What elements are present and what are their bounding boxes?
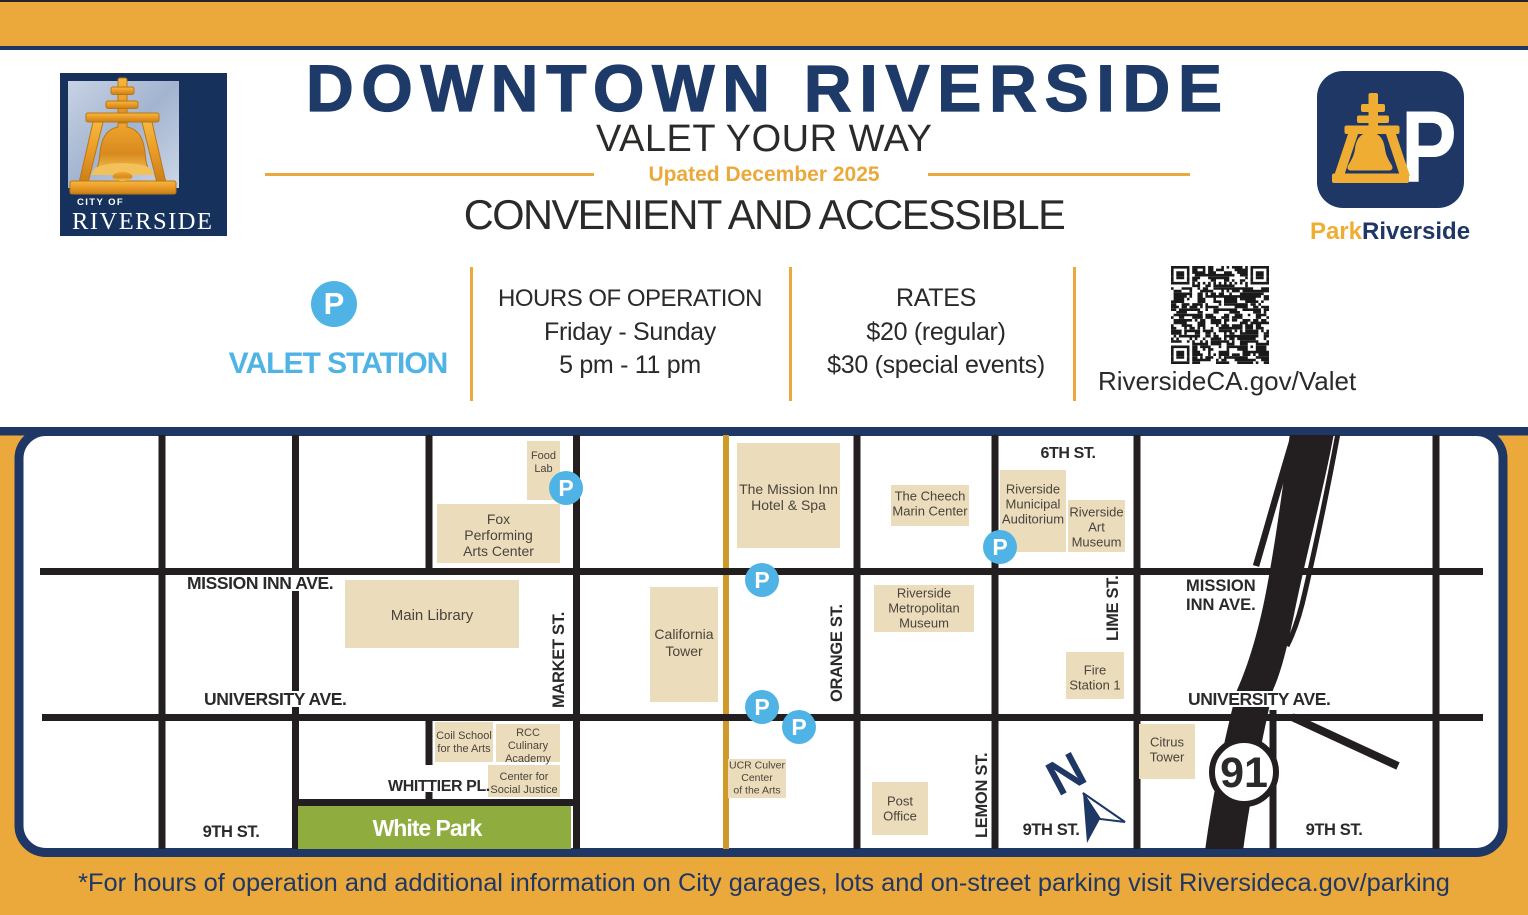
svg-text:White Park: White Park: [373, 815, 483, 841]
svg-text:CitrusTower: CitrusTower: [1150, 734, 1185, 764]
svg-text:6TH ST.: 6TH ST.: [1041, 445, 1096, 462]
svg-text:FoodLab: FoodLab: [531, 450, 556, 475]
svg-text:WHITTIER PL.: WHITTIER PL.: [388, 778, 490, 795]
svg-text:The CheechMarin Center: The CheechMarin Center: [892, 488, 968, 518]
svg-text:RiversideMunicipalAuditorium: RiversideMunicipalAuditorium: [1002, 481, 1064, 526]
svg-text:MISSIONINN AVE.: MISSIONINN AVE.: [1186, 577, 1256, 614]
svg-text:P: P: [754, 567, 769, 593]
svg-text:Center forSocial Justice: Center forSocial Justice: [490, 771, 557, 796]
svg-text:9TH ST.: 9TH ST.: [203, 823, 260, 841]
svg-text:MISSION INN AVE.: MISSION INN AVE.: [187, 573, 333, 593]
svg-text:Main Library: Main Library: [391, 607, 474, 624]
svg-text:The Mission InnHotel & Spa: The Mission InnHotel & Spa: [739, 481, 838, 513]
svg-text:LIME ST.: LIME ST.: [1104, 576, 1122, 641]
svg-text:P: P: [558, 475, 573, 501]
svg-text:9TH ST.: 9TH ST.: [1306, 821, 1363, 839]
svg-text:P: P: [992, 534, 1007, 560]
svg-text:Coil Schoolfor the Arts: Coil Schoolfor the Arts: [436, 730, 492, 755]
svg-text:PostOffice: PostOffice: [883, 793, 917, 823]
svg-text:9TH ST.: 9TH ST.: [1023, 821, 1080, 839]
svg-text:MARKET ST.: MARKET ST.: [550, 612, 568, 708]
svg-text:UNIVERSITY AVE.: UNIVERSITY AVE.: [1188, 689, 1330, 709]
svg-text:ORANGE ST.: ORANGE ST.: [828, 604, 846, 702]
svg-text:UNIVERSITY AVE.: UNIVERSITY AVE.: [204, 689, 346, 709]
svg-text:P: P: [791, 714, 806, 740]
svg-text:P: P: [754, 694, 769, 720]
svg-text:91: 91: [1220, 749, 1268, 797]
svg-text:LEMON ST.: LEMON ST.: [973, 753, 991, 838]
